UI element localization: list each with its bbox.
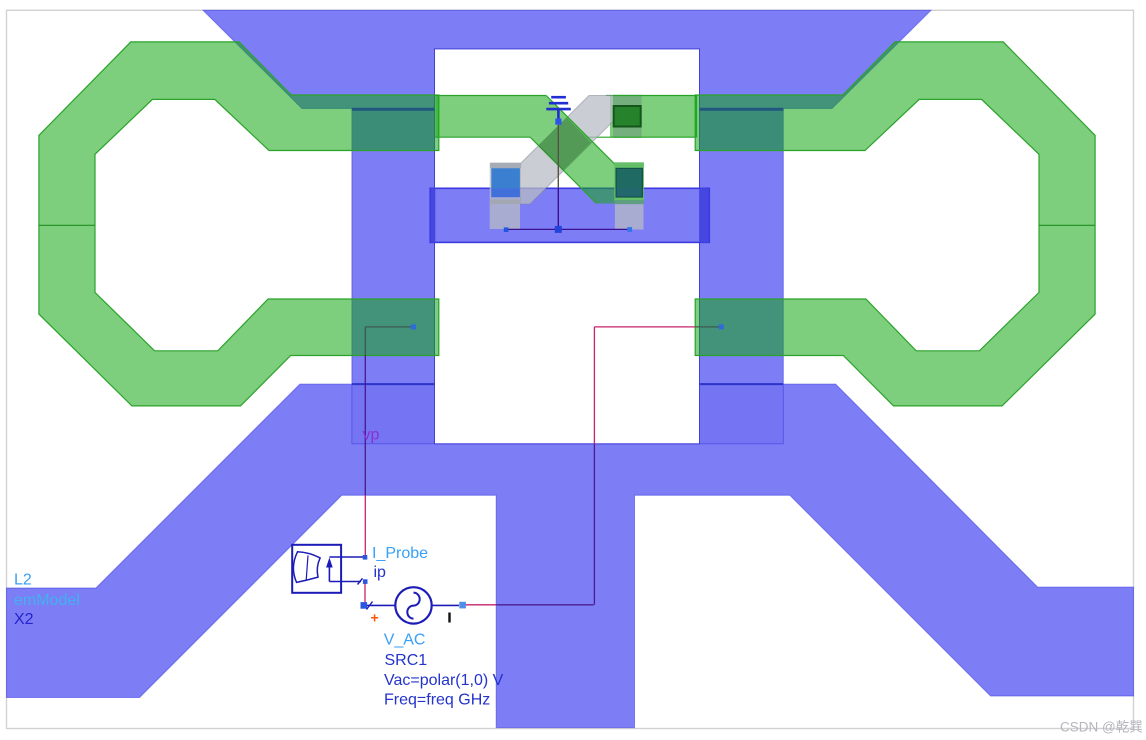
svg-text:Freq=freq GHz: Freq=freq GHz: [384, 692, 490, 709]
svg-text:I_Probe: I_Probe: [372, 545, 428, 562]
svg-text:vp: vp: [363, 427, 380, 444]
svg-text:V_AC: V_AC: [384, 632, 426, 649]
svg-text:Vac=polar(1,0) V: Vac=polar(1,0) V: [384, 672, 504, 689]
svg-text:emModel: emModel: [14, 592, 80, 609]
svg-text:X2: X2: [14, 611, 34, 628]
svg-text:L2: L2: [14, 572, 32, 589]
svg-text:ip: ip: [374, 564, 387, 581]
svg-text:SRC1: SRC1: [385, 652, 428, 669]
svg-text:+: +: [371, 610, 379, 626]
svg-text:CSDN @乾巽: CSDN @乾巽: [1060, 720, 1143, 735]
